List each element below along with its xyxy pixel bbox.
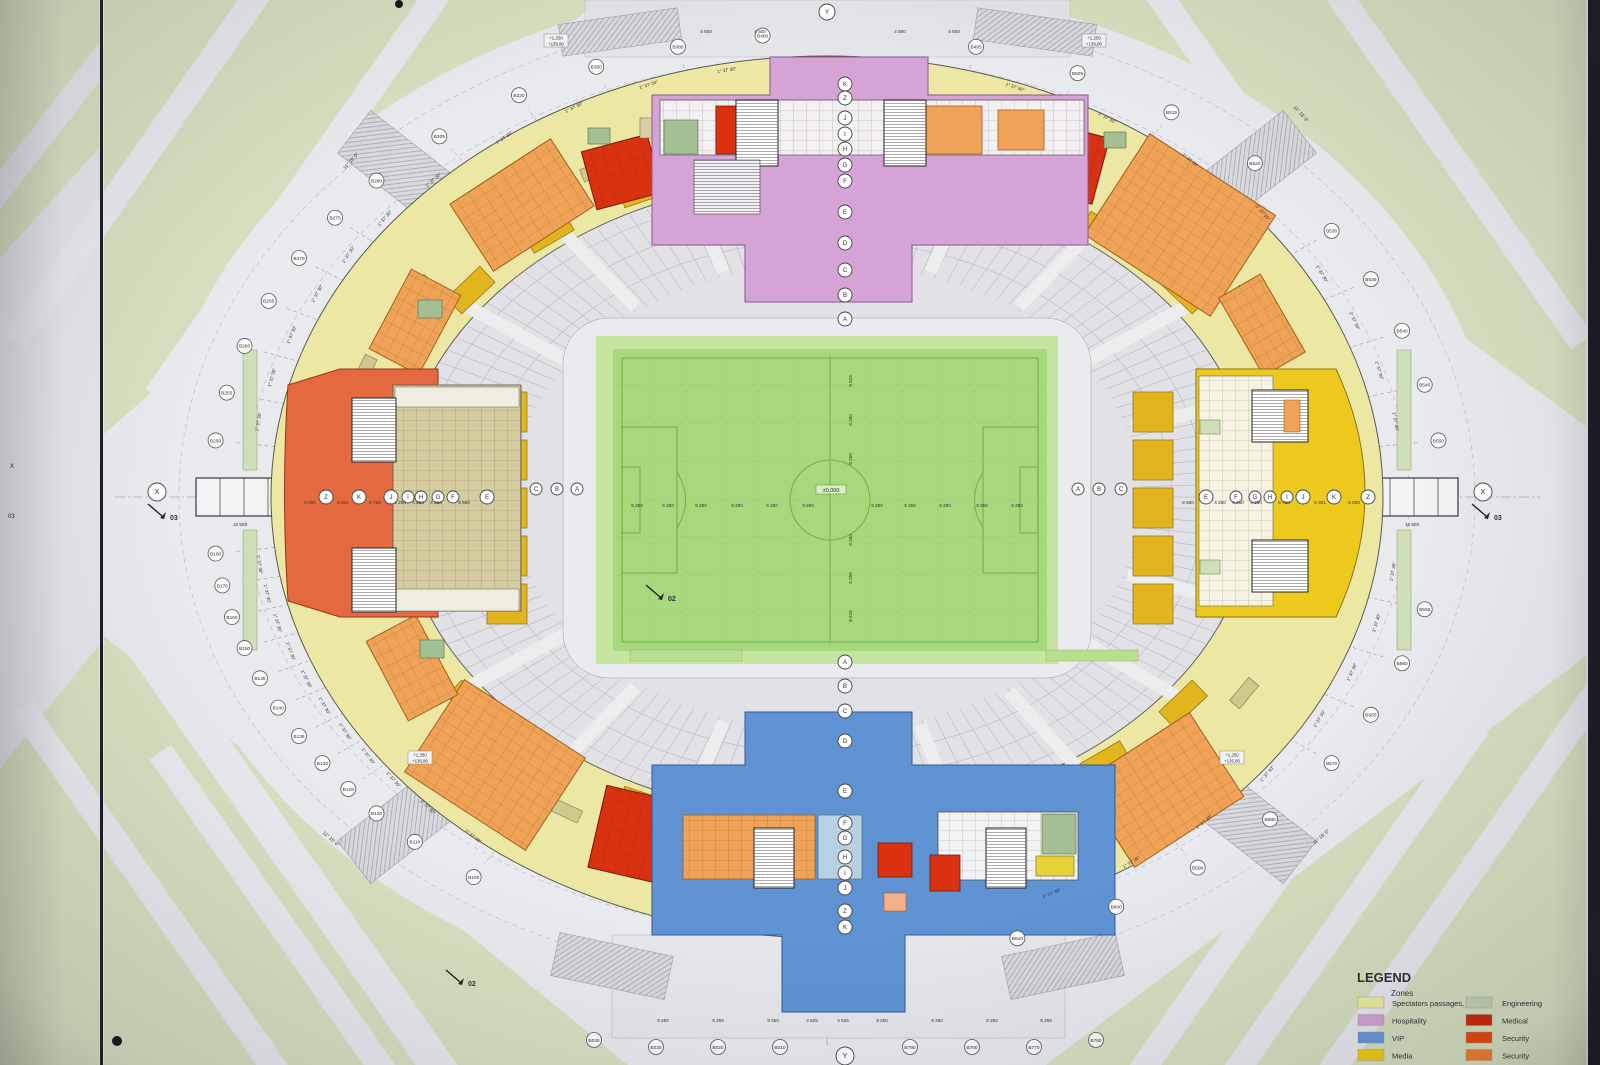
axis-letter: J: [844, 886, 847, 892]
legend-swatch: [1358, 1015, 1384, 1026]
dimension-label: 9 250: [766, 503, 778, 508]
elevation-upper: +1,250: [1087, 36, 1101, 41]
grid-bubble-label: B555: [1419, 607, 1431, 613]
grid-bubble-label: B580: [1265, 817, 1277, 823]
legend-row: VIP: [1358, 1032, 1404, 1043]
left-strip-axis-label: X: [10, 464, 14, 470]
grid-bubble-label: B565: [1365, 713, 1377, 719]
axis-letter: H: [843, 855, 847, 861]
axis-letter: E: [485, 495, 489, 501]
grid-bubble-label: B020: [712, 1045, 724, 1051]
elevation-lower: +136,80: [548, 42, 565, 47]
grid-bubble-label: B600: [1111, 904, 1123, 910]
dimension-label: 9 250: [731, 503, 743, 508]
axis-letter: A: [575, 487, 579, 493]
grid-bubble-label: B145: [254, 676, 266, 682]
pitch-center-elevation: ±0,000: [816, 485, 846, 494]
fastener-dot: [112, 1036, 122, 1046]
dimension-label: 8 500: [458, 500, 470, 505]
grid-bubble-label: B505: [1072, 71, 1084, 77]
elevation-lower: +136,80: [1224, 759, 1241, 764]
grid-bubble-label: B140: [273, 705, 285, 711]
dimension-label: 9 250: [848, 453, 853, 465]
legend-label: Security: [1502, 1034, 1529, 1043]
dimension-label: 9 250: [848, 572, 853, 584]
axis-letter: G: [843, 836, 848, 842]
left-seam: [100, 0, 103, 1065]
elevation-upper: +1,250: [549, 36, 563, 41]
axis-letter: E: [843, 210, 847, 216]
dimension-label: 9 250: [986, 1018, 998, 1023]
left-strip-section-label: 03: [8, 514, 15, 520]
grid-bubble-label: B760: [1090, 1038, 1102, 1044]
dimension-label: 9 250: [1011, 503, 1023, 508]
dimension-label: 4 625: [837, 1018, 849, 1023]
legend-label: Security: [1502, 1052, 1529, 1061]
grid-bubble-label: B100: [468, 875, 480, 881]
grid-bubble-label: B265: [263, 299, 275, 305]
dimension-label: 9 250: [662, 503, 674, 508]
dimension-label: 6 720: [1278, 500, 1290, 505]
legend-row: Spectators passages, stairs: [1358, 997, 1484, 1008]
axis-letter: H: [1268, 495, 1272, 501]
dimension-label: 9 250: [657, 1018, 669, 1023]
dimension-label: 4 500: [894, 29, 906, 34]
axis-letter: A: [1076, 487, 1080, 493]
axis-letter: C: [843, 709, 848, 715]
elevation-lower: +136,80: [1086, 42, 1103, 47]
dimension-label: 9 250: [904, 503, 916, 508]
grid-bubble-label: B255: [221, 390, 233, 396]
grid-bubble-label: B040: [588, 1038, 600, 1044]
dimension-label: 9 250: [939, 503, 951, 508]
dimension-label: 9 250: [848, 534, 853, 546]
grid-bubble-label: B550: [1433, 438, 1445, 444]
dimension-label: 9 250: [631, 503, 643, 508]
axis-letter: J: [390, 495, 393, 501]
fastener-dot: [395, 0, 403, 8]
dimension-label: 8 625: [848, 610, 853, 622]
grid-bubble-label: B610: [1012, 936, 1024, 942]
legend-row: Hospitality: [1358, 1015, 1427, 1026]
axis-letter: C: [843, 268, 848, 274]
axis-letter: D: [843, 241, 848, 247]
dimension-label: 9 250: [1040, 1018, 1052, 1023]
axis-letter: J: [1302, 495, 1305, 501]
legend-label: Hospitality: [1392, 1017, 1427, 1026]
dimension-label: 9 250: [871, 503, 883, 508]
axis-letter: X: [155, 489, 160, 496]
axis-letter: Z: [843, 909, 847, 915]
dimension-label: 8 500: [1182, 500, 1194, 505]
elevation-upper: +1,250: [1225, 753, 1239, 758]
dimension-label: 4 250: [394, 500, 406, 505]
grid-bubble-label: B180: [210, 551, 222, 557]
axis-letter: F: [451, 495, 455, 501]
axis-letter: X: [1481, 489, 1486, 496]
legend-subtitle: Zones: [1391, 989, 1413, 998]
grid-bubble-label: B540: [1396, 329, 1408, 335]
legend-title: LEGEND: [1357, 970, 1411, 985]
dimension-label: 8 625: [848, 375, 853, 387]
grid-bubble-label: B495: [970, 45, 982, 51]
grid-bubble-label: B380: [672, 45, 684, 51]
axis-letter: Y: [843, 1053, 848, 1060]
axis-letter: C: [1119, 487, 1124, 493]
axis-letter: B: [1097, 487, 1101, 493]
legend-swatch: [1358, 1050, 1384, 1061]
axis-letter: G: [843, 163, 848, 169]
section-cut-label: 03: [1494, 515, 1502, 522]
legend-label: Medical: [1502, 1017, 1528, 1026]
axis-letter: K: [357, 495, 361, 501]
dimension-label: 9 250: [976, 503, 988, 508]
grid-bubble-label: B770: [1028, 1045, 1040, 1051]
axis-letter: J: [844, 116, 847, 122]
section-cut-label: 03: [170, 515, 178, 522]
grid-bubble-label: B570: [1326, 761, 1338, 767]
grid-bubble-label: B125: [343, 787, 355, 793]
grid-bubble-label: B270: [293, 256, 305, 262]
axis-letter: Y: [825, 10, 829, 16]
axis-letter: K: [843, 925, 847, 931]
axis-letter: Z: [843, 96, 847, 102]
dimension-label: 6 720: [369, 500, 381, 505]
grid-bubble-label: B250: [210, 438, 222, 444]
legend-label: Media: [1392, 1052, 1413, 1061]
legend-label: Engineering: [1502, 999, 1542, 1008]
dimension-label: 4 500: [700, 29, 712, 34]
dimension-label: 15 600: [1405, 522, 1419, 527]
grid-bubble-label: B515: [1166, 110, 1178, 116]
grid-bubble-label: B545: [1419, 383, 1431, 389]
legend-label: VIP: [1392, 1034, 1404, 1043]
axis-letter: Z: [324, 495, 328, 501]
dimension-label: 4 500: [754, 29, 766, 34]
axis-letter: B: [555, 487, 559, 493]
dimension-label: 4 250: [1232, 500, 1244, 505]
legend-swatch: [1358, 997, 1384, 1008]
dimension-label: 9 250: [848, 414, 853, 426]
dimension-label: 9 250: [931, 1018, 943, 1023]
axis-letter: K: [843, 82, 847, 88]
grid-bubble-label: B320: [513, 93, 525, 99]
grid-bubble-label: B305: [434, 134, 446, 140]
dimension-label: 5 301: [1314, 500, 1326, 505]
grid-bubble-label: B170: [217, 583, 229, 589]
elevation-lower: +136,80: [412, 759, 429, 764]
grid-bubble-label: B110: [409, 840, 420, 846]
grid-bubble-label: B790: [904, 1045, 916, 1051]
grid-bubble-label: B530: [1326, 229, 1338, 235]
grid-bubble-label: B010: [774, 1045, 786, 1051]
grid-bubble-label: B260: [239, 344, 251, 350]
stadium-plan-drawing: B530B535B540B545B550B520B515B505B495B400…: [0, 0, 1600, 1065]
dimension-label: 4 250: [1214, 500, 1226, 505]
grid-bubble-label: B590: [1192, 865, 1204, 871]
dimension-label: 4 250: [430, 500, 442, 505]
grid-bubble-label: B350: [591, 65, 603, 71]
elevation-upper: +1,250: [413, 753, 427, 758]
axis-letter: Z: [1366, 495, 1370, 501]
grid-bubble-label: B290: [371, 178, 383, 184]
grid-bubble-label: B400: [757, 33, 769, 39]
grid-bubble-label: B535: [1365, 277, 1377, 283]
legend-swatch: [1358, 1032, 1384, 1043]
grid-bubble-label: B160: [226, 615, 238, 621]
legend-swatch: [1466, 1032, 1492, 1043]
legend-swatch: [1466, 997, 1492, 1008]
dimension-label: 9 250: [712, 1018, 724, 1023]
legend-swatch: [1466, 1050, 1492, 1061]
axis-letter: B: [843, 293, 847, 299]
section-cut-label: 02: [668, 596, 676, 603]
dimension-label: 6 000: [304, 500, 316, 505]
axis-letter: B: [843, 684, 847, 690]
grid-bubble-label: B780: [966, 1045, 978, 1051]
grid-bubble-label: B030: [650, 1045, 662, 1051]
dimension-label: 4 250: [1250, 500, 1262, 505]
axis-letter: E: [1204, 495, 1208, 501]
grid-bubble-label: B560: [1396, 661, 1408, 667]
dimension-label: 4 250: [412, 500, 424, 505]
dimension-label: 4 625: [806, 1018, 818, 1023]
dimension-label: 9 250: [802, 503, 814, 508]
grid-bubble-label: B130: [317, 761, 329, 767]
dimension-label: 4 500: [948, 29, 960, 34]
axis-letter: C: [534, 487, 539, 493]
right-edge-band: [1588, 0, 1600, 1065]
axis-letter: D: [843, 739, 848, 745]
grid-bubble-label: B520: [1249, 161, 1261, 167]
grid-bubble-label: B150: [239, 646, 251, 652]
photographed-stadium-floor-plan: B530B535B540B545B550B520B515B505B495B400…: [0, 0, 1600, 1065]
dimension-label: 9 250: [876, 1018, 888, 1023]
dimension-label: 15 600: [233, 522, 247, 527]
dimension-label: 9 250: [767, 1018, 779, 1023]
axis-letter: F: [843, 179, 847, 185]
section-cut-label: 02: [468, 981, 476, 988]
dimension-label: 5 301: [337, 500, 349, 505]
grid-bubble-label: B135: [293, 734, 305, 740]
legend-row: Engineering: [1466, 997, 1542, 1008]
axis-letter: A: [843, 660, 847, 666]
grid-bubble-label: B120: [371, 811, 383, 817]
pitch-elevation-value: ±0,000: [823, 488, 840, 494]
dimension-label: 9 250: [695, 503, 707, 508]
axis-letter: K: [1332, 495, 1336, 501]
grid-bubble-label: B275: [329, 216, 341, 222]
legend-swatch: [1466, 1015, 1492, 1026]
axis-letter: E: [843, 789, 847, 795]
axis-letter: A: [843, 317, 847, 323]
axis-letter: H: [843, 147, 847, 153]
dimension-label: 6 000: [1348, 500, 1360, 505]
axis-letter: F: [843, 821, 847, 827]
